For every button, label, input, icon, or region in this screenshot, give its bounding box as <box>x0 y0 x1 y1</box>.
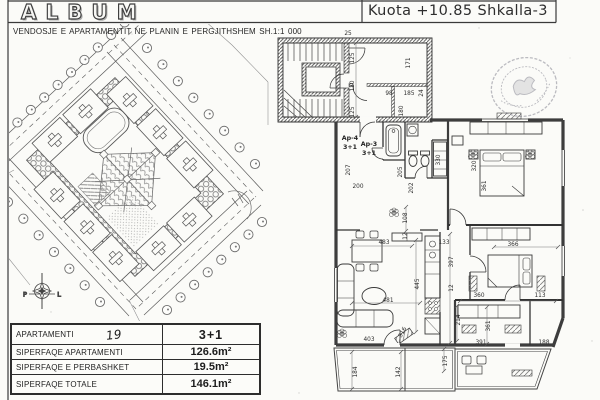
dimension-label: 205 <box>398 166 404 177</box>
table-label-cell: SIPERFAQE TOTALE <box>12 375 162 393</box>
wardrobe <box>472 228 530 240</box>
dimension-label: 481 <box>382 298 393 304</box>
tree-symbol <box>257 217 266 226</box>
dimension-label: 360 <box>473 293 484 299</box>
tree-symbol <box>80 281 89 290</box>
unit-labels: Ap-43+1Ap-33+1 <box>342 135 377 157</box>
table-label-cell: SIPERFAQE E PERBASHKET <box>12 360 162 374</box>
tree-symbol <box>217 255 226 264</box>
tree-symbol <box>142 43 151 52</box>
dimension-label: 180 <box>399 105 405 116</box>
elevation-label: Kuota +10.85 Shkalla-3 <box>368 3 554 19</box>
plant-symbol <box>525 150 534 159</box>
dimension-label: 171 <box>406 57 412 68</box>
elevator-shaft <box>302 63 340 96</box>
stove <box>425 298 440 314</box>
dimension-label: 214 <box>456 314 462 325</box>
dimension-label: 24 <box>419 89 425 97</box>
table-value: 126.6m² <box>162 345 259 359</box>
dimension-label: 113 <box>534 293 545 299</box>
tree-symbol <box>189 93 198 102</box>
dimension-label: 366 <box>507 242 518 248</box>
dimension-label: 185 <box>403 91 414 97</box>
tree-symbol <box>244 230 253 239</box>
table-label: SIPERFAQE E PERBASHKET <box>16 363 129 372</box>
bidet <box>421 151 430 155</box>
compass-rose: P L <box>23 273 61 309</box>
dimension-label: 108 <box>403 212 409 223</box>
tree-symbol <box>235 143 244 152</box>
site-plan <box>0 0 268 322</box>
fridge <box>425 318 440 334</box>
plant-symbol <box>337 329 346 338</box>
tree-symbol <box>13 118 22 127</box>
unit-label: Ap-3 <box>361 141 377 148</box>
table-row: SIPERFAQE TOTALE 146.1m² <box>12 374 259 393</box>
unit-label: 3+1 <box>362 150 376 157</box>
dimension-label: 25 <box>344 31 352 37</box>
handwritten-apartment-number: 19 <box>105 327 122 343</box>
dining-table <box>352 231 382 271</box>
tree-symbol <box>204 110 213 119</box>
tree-symbol <box>34 231 43 240</box>
dimension-label: 403 <box>363 337 374 343</box>
bed-double <box>488 255 532 287</box>
tree-symbol <box>162 305 171 314</box>
dimension-label: 125 <box>350 106 356 117</box>
balconies <box>334 348 551 391</box>
dimension-label: 202 <box>409 182 415 193</box>
table-row: SIPERFAQE E PERBASHKET 19.5m² <box>12 359 259 374</box>
tree-symbol <box>190 280 199 289</box>
tree-symbol <box>19 214 28 223</box>
compass-east-label: L <box>57 291 61 299</box>
dimension-label: 175 <box>443 355 449 366</box>
apartment-info-table: APARTAMENTI 19 3+1 SIPERFAQE APARTAMENTI… <box>10 323 261 395</box>
dimension-label: 125 <box>350 52 356 63</box>
tree-symbol <box>176 293 185 302</box>
dimension-label: 320 <box>472 160 478 171</box>
unit-label: 3+1 <box>343 144 357 151</box>
radiator <box>469 276 477 291</box>
dimension-label: 184 <box>353 366 359 377</box>
table-label: SIPERFAQE TOTALE <box>16 380 97 389</box>
flower-box <box>462 325 476 333</box>
toilet <box>409 151 418 155</box>
dimension-label: 361 <box>482 180 488 191</box>
radiator <box>512 370 532 376</box>
table-value: 19.5m² <box>162 360 259 374</box>
dimension-label: 133 <box>438 240 449 246</box>
compass-west-label: P <box>23 291 27 299</box>
tree-symbol <box>66 68 75 77</box>
plant-symbol <box>389 208 398 217</box>
dimension-label: 445 <box>415 278 421 289</box>
flower-box <box>505 325 521 333</box>
tree-symbol <box>65 264 74 273</box>
sofa <box>337 264 393 327</box>
dimension-label: 330 <box>436 154 442 165</box>
table-value: 146.1m² <box>162 375 259 393</box>
album-logo: ALBUM <box>21 0 146 24</box>
dimension-label: 188 <box>538 340 549 346</box>
tree-symbol <box>220 126 229 135</box>
tree-symbol <box>95 297 104 306</box>
wardrobe-strip <box>458 305 520 318</box>
dimension-label: 207 <box>346 164 352 175</box>
tree-symbol <box>250 159 259 168</box>
site-plan-caption: VENDOSJE E APARTAMENTIT NE PLANIN E PERG… <box>13 27 302 36</box>
tree-symbol <box>40 93 49 102</box>
table-row: APARTAMENTI 19 3+1 <box>12 325 259 344</box>
tree-symbol <box>80 55 89 64</box>
dimension-label: 391 <box>475 340 486 346</box>
table-row: SIPERFAQE APARTAMENTI 126.6m² <box>12 344 259 359</box>
table-value: 3+1 <box>162 325 259 344</box>
tree-symbol <box>93 43 102 52</box>
unit-label: Ap-4 <box>342 135 359 142</box>
tree-symbol <box>53 80 62 89</box>
table-label: SIPERFAQE APARTAMENTI <box>16 348 123 357</box>
tree-symbol <box>203 268 212 277</box>
balcony-set <box>462 356 486 374</box>
dimension-label: 361 <box>486 320 492 331</box>
stair-walls <box>344 43 427 117</box>
tree-symbol <box>26 105 35 114</box>
dimension-label: 12 <box>403 232 409 240</box>
table-label-cell: APARTAMENTI 19 <box>12 325 162 344</box>
dimension-label: 397 <box>449 256 455 267</box>
radiator <box>537 276 545 291</box>
plant-symbol <box>468 150 477 159</box>
dimension-label: 200 <box>352 184 363 190</box>
wardrobe <box>470 122 542 134</box>
dimension-label: 98 <box>385 91 393 97</box>
official-stamp <box>484 49 565 125</box>
tree-symbol <box>158 60 167 69</box>
dimension-label: 12 <box>449 284 455 292</box>
dimension-label: 483 <box>378 240 389 246</box>
dimension-label: 142 <box>396 366 402 377</box>
table-label: APARTAMENTI <box>16 330 74 339</box>
tree-symbol <box>173 77 182 86</box>
tree-symbol <box>0 130 9 139</box>
table-label-cell: SIPERFAQE APARTAMENTI <box>12 345 162 359</box>
tree-symbol <box>49 247 58 256</box>
drawing-sheet: P L <box>0 0 600 400</box>
side-table <box>452 136 463 145</box>
tree-symbol <box>230 243 239 252</box>
dimension-label: 120 <box>350 80 356 91</box>
